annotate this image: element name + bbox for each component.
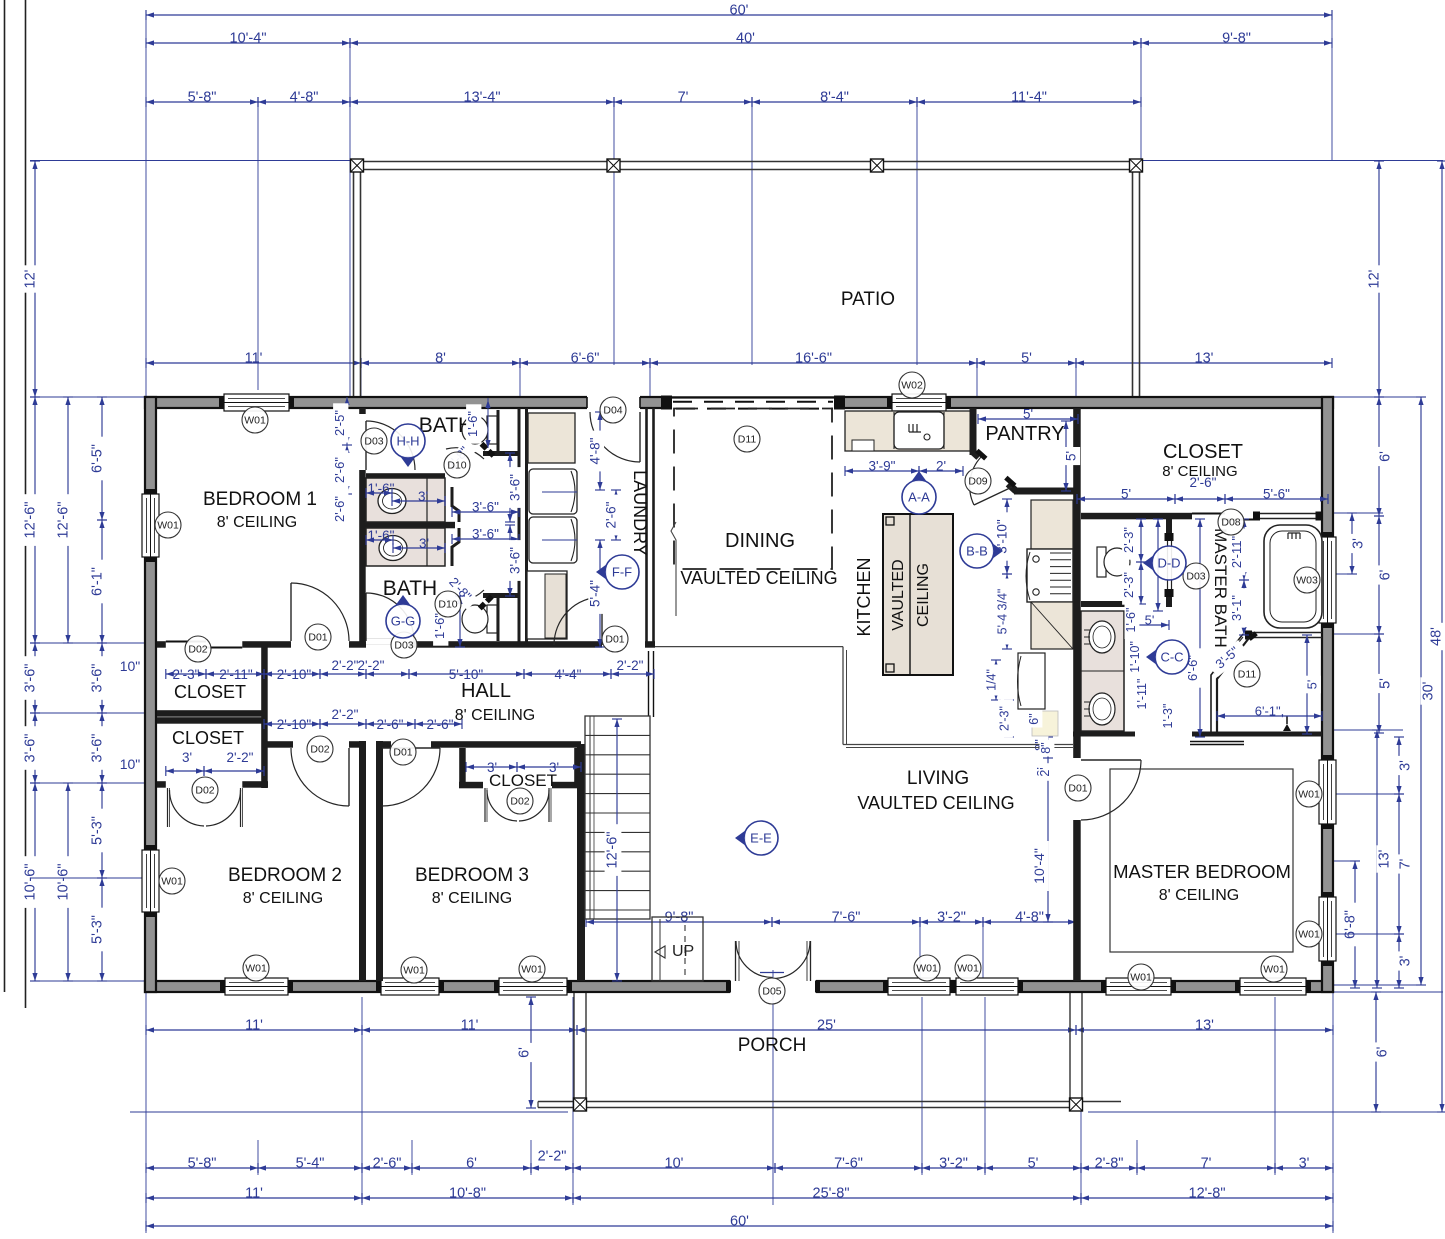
svg-text:5'-8": 5'-8" xyxy=(188,1156,217,1172)
svg-text:H-H: H-H xyxy=(396,434,419,449)
svg-text:4'-8": 4'-8" xyxy=(1015,910,1044,926)
svg-text:2'-10": 2'-10" xyxy=(277,717,312,732)
svg-text:VAULTED: VAULTED xyxy=(890,559,907,630)
svg-text:2': 2' xyxy=(1038,767,1052,776)
svg-text:7'-6": 7'-6" xyxy=(832,910,861,926)
svg-text:3': 3' xyxy=(1299,1156,1310,1172)
svg-text:CEILING: CEILING xyxy=(915,563,932,627)
svg-text:2'-3": 2'-3" xyxy=(998,706,1012,731)
svg-text:VAULTED CEILING: VAULTED CEILING xyxy=(680,568,837,588)
svg-text:D02: D02 xyxy=(310,744,329,756)
svg-text:2'-11": 2'-11" xyxy=(1229,536,1244,569)
svg-text:D05: D05 xyxy=(762,986,781,998)
svg-text:KITCHEN: KITCHEN xyxy=(854,557,874,636)
svg-text:2'-2": 2'-2" xyxy=(332,707,359,722)
svg-text:25': 25' xyxy=(817,1018,836,1034)
svg-text:10'-6": 10'-6" xyxy=(56,864,72,901)
svg-text:1/4": 1/4" xyxy=(985,669,999,691)
svg-text:11'-4": 11'-4" xyxy=(1011,90,1047,106)
svg-text:13': 13' xyxy=(1377,849,1393,868)
svg-text:12': 12' xyxy=(23,269,39,288)
svg-text:4'-8": 4'-8" xyxy=(290,90,319,106)
svg-text:5'-3": 5'-3" xyxy=(90,915,106,944)
svg-text:D03: D03 xyxy=(364,436,383,448)
svg-text:2'-6": 2'-6" xyxy=(604,501,619,528)
svg-text:G-G: G-G xyxy=(391,614,416,629)
svg-text:5'-4 3/4": 5'-4 3/4" xyxy=(996,589,1010,635)
svg-text:HALL: HALL xyxy=(461,680,511,702)
svg-text:UP: UP xyxy=(672,943,694,960)
svg-text:11': 11' xyxy=(245,351,263,367)
svg-text:3'-1": 3'-1" xyxy=(1229,595,1244,621)
svg-text:2'-2": 2'-2" xyxy=(332,658,359,673)
svg-text:D11: D11 xyxy=(1238,669,1257,681)
svg-text:5': 5' xyxy=(1064,451,1079,461)
svg-text:60': 60' xyxy=(730,3,749,19)
svg-text:3': 3' xyxy=(549,760,559,775)
svg-text:3': 3' xyxy=(487,760,497,775)
svg-text:2'-11": 2'-11" xyxy=(219,667,253,682)
svg-text:7': 7' xyxy=(678,90,689,106)
svg-text:5': 5' xyxy=(1023,407,1033,422)
svg-text:3'-6": 3'-6" xyxy=(508,547,523,574)
svg-text:PATIO: PATIO xyxy=(841,289,895,310)
svg-text:D04: D04 xyxy=(603,405,622,417)
svg-text:D01: D01 xyxy=(605,634,624,646)
svg-text:D02: D02 xyxy=(195,785,214,797)
svg-text:3': 3' xyxy=(418,489,428,504)
svg-text:3': 3' xyxy=(1351,538,1367,549)
svg-text:W01: W01 xyxy=(1298,789,1320,801)
svg-text:LAUNDRY: LAUNDRY xyxy=(630,470,650,556)
svg-text:13'-4": 13'-4" xyxy=(464,90,501,106)
svg-text:6': 6' xyxy=(1378,569,1394,580)
svg-text:3': 3' xyxy=(182,750,192,765)
svg-text:6': 6' xyxy=(1375,1046,1391,1057)
svg-text:2'-6": 2'-6" xyxy=(377,717,404,732)
svg-text:W01: W01 xyxy=(1130,972,1152,984)
svg-text:2'-2": 2'-2" xyxy=(358,658,385,673)
svg-text:5'-4": 5'-4" xyxy=(588,580,603,607)
svg-text:3': 3' xyxy=(1398,760,1414,771)
svg-text:D01: D01 xyxy=(1068,783,1087,795)
svg-text:1'-6": 1'-6" xyxy=(1124,608,1138,633)
svg-text:5': 5' xyxy=(1305,680,1320,690)
svg-text:D08: D08 xyxy=(1221,517,1240,529)
svg-text:6": 6" xyxy=(1027,713,1041,724)
svg-text:D01: D01 xyxy=(393,747,412,759)
svg-text:1'-10": 1'-10" xyxy=(1128,641,1142,673)
svg-text:W03: W03 xyxy=(1296,575,1318,587)
svg-text:1'-6": 1'-6" xyxy=(368,528,395,543)
svg-text:6'-6": 6'-6" xyxy=(571,351,600,367)
svg-text:PANTRY: PANTRY xyxy=(985,423,1064,445)
svg-text:60': 60' xyxy=(730,1214,749,1230)
svg-text:A-A: A-A xyxy=(908,490,930,505)
svg-text:6'-1": 6'-1" xyxy=(90,567,106,596)
svg-text:3'-9": 3'-9" xyxy=(869,459,896,474)
svg-text:12': 12' xyxy=(1367,269,1383,288)
svg-text:5'-3": 5'-3" xyxy=(90,816,106,845)
svg-text:10'-6": 10'-6" xyxy=(23,864,39,901)
svg-text:11': 11' xyxy=(245,1018,263,1034)
svg-text:8' CEILING: 8' CEILING xyxy=(455,707,535,724)
svg-text:10'-4": 10'-4" xyxy=(230,31,267,47)
svg-text:2'-2": 2'-2" xyxy=(227,750,254,765)
svg-text:48': 48' xyxy=(1429,627,1445,646)
svg-text:BEDROOM 3: BEDROOM 3 xyxy=(415,865,529,886)
svg-text:2'-5": 2'-5" xyxy=(332,410,347,436)
svg-text:5'-4": 5'-4" xyxy=(296,1156,325,1172)
svg-text:DINING: DINING xyxy=(725,530,795,552)
svg-text:10': 10' xyxy=(665,1156,684,1172)
svg-text:5': 5' xyxy=(1021,351,1032,367)
svg-text:CLOSET: CLOSET xyxy=(174,682,246,702)
svg-text:3'-2": 3'-2" xyxy=(939,1156,968,1172)
svg-text:6': 6' xyxy=(1378,451,1394,462)
svg-text:CLOSET: CLOSET xyxy=(489,771,557,790)
svg-text:W01: W01 xyxy=(916,963,938,975)
svg-text:4'-4": 4'-4" xyxy=(555,667,582,682)
svg-text:25'-8": 25'-8" xyxy=(813,1186,850,1202)
svg-text:D02: D02 xyxy=(188,644,207,656)
svg-text:D03: D03 xyxy=(1186,571,1205,583)
svg-text:10": 10" xyxy=(120,658,141,674)
svg-text:6'-8": 6'-8" xyxy=(1343,910,1359,939)
svg-text:D09: D09 xyxy=(968,476,987,488)
svg-text:D03: D03 xyxy=(394,640,413,652)
svg-text:7': 7' xyxy=(1398,858,1414,869)
svg-text:5': 5' xyxy=(1121,487,1131,502)
svg-text:3'-6": 3'-6" xyxy=(508,474,523,501)
svg-text:16'-6": 16'-6" xyxy=(795,351,832,367)
svg-text:1'-11": 1'-11" xyxy=(1135,679,1149,710)
svg-text:1'-3": 1'-3" xyxy=(1161,704,1175,729)
svg-text:6'-1",: 6'-1", xyxy=(1255,704,1285,719)
svg-text:2'-3": 2'-3" xyxy=(1121,572,1136,598)
svg-text:BEDROOM 2: BEDROOM 2 xyxy=(228,865,342,886)
svg-text:7'-6": 7'-6" xyxy=(834,1156,863,1172)
svg-text:3': 3' xyxy=(419,536,429,551)
svg-text:MASTER BEDROOM: MASTER BEDROOM xyxy=(1113,861,1291,882)
svg-text:3'-2": 3'-2" xyxy=(937,910,966,926)
svg-text:PORCH: PORCH xyxy=(738,1035,807,1056)
svg-text:W01: W01 xyxy=(403,965,425,977)
svg-text:C-C: C-C xyxy=(1160,650,1183,665)
svg-text:F-F: F-F xyxy=(612,565,632,580)
svg-text:13': 13' xyxy=(1195,1018,1214,1034)
svg-text:D01: D01 xyxy=(308,632,327,644)
svg-text:30': 30' xyxy=(1421,681,1437,700)
svg-text:W01: W01 xyxy=(1298,929,1320,941)
svg-text:2'-10": 2'-10" xyxy=(277,667,312,682)
svg-text:8': 8' xyxy=(435,351,446,367)
svg-text:2'-8": 2'-8" xyxy=(1095,1156,1124,1172)
svg-text:8' CEILING: 8' CEILING xyxy=(217,514,297,531)
svg-text:W01: W01 xyxy=(521,964,543,976)
svg-text:D-D: D-D xyxy=(1157,556,1180,571)
svg-text:3': 3' xyxy=(1398,955,1414,966)
svg-text:1'-6": 1'-6" xyxy=(465,411,480,437)
svg-text:CLOSET: CLOSET xyxy=(172,728,244,748)
svg-text:5': 5' xyxy=(1145,613,1155,628)
svg-text:12'-6": 12'-6" xyxy=(56,502,72,539)
svg-text:3'-6": 3'-6" xyxy=(23,734,39,763)
svg-text:D02: D02 xyxy=(510,796,529,808)
svg-text:W01: W01 xyxy=(1263,964,1285,976)
svg-text:5': 5' xyxy=(1378,678,1394,689)
svg-text:8' CEILING: 8' CEILING xyxy=(1159,887,1239,904)
svg-text:LIVING: LIVING xyxy=(907,768,969,789)
svg-text:9'-8": 9'-8" xyxy=(1222,31,1251,47)
svg-text:2'-2": 2'-2" xyxy=(617,658,644,673)
svg-text:8'-4": 8'-4" xyxy=(820,90,849,106)
svg-text:W01: W01 xyxy=(245,963,267,975)
svg-text:5'-8": 5'-8" xyxy=(188,90,217,106)
svg-text:W01: W01 xyxy=(957,963,979,975)
svg-text:B-B: B-B xyxy=(966,544,988,559)
svg-text:10": 10" xyxy=(120,756,141,772)
svg-text:BATH: BATH xyxy=(383,577,437,600)
svg-text:D10: D10 xyxy=(438,599,457,611)
svg-text:E-E: E-E xyxy=(750,831,772,846)
svg-text:13': 13' xyxy=(1195,351,1214,367)
svg-text:8": 8" xyxy=(1039,742,1053,753)
svg-text:2'-6": 2'-6" xyxy=(427,717,454,732)
svg-text:7': 7' xyxy=(1201,1156,1212,1172)
svg-text:12'-8": 12'-8" xyxy=(1189,1186,1226,1202)
svg-text:W02: W02 xyxy=(901,380,923,392)
svg-text:12'-6": 12'-6" xyxy=(23,502,39,539)
svg-text:12'-6": 12'-6" xyxy=(605,832,621,869)
svg-text:6'-5": 6'-5" xyxy=(90,444,106,473)
svg-text:2'-6": 2'-6" xyxy=(332,496,347,522)
svg-text:2'-6": 2'-6" xyxy=(373,1156,402,1172)
svg-text:VAULTED CEILING: VAULTED CEILING xyxy=(857,793,1014,813)
svg-text:2': 2' xyxy=(936,459,946,474)
svg-text:3'-6": 3'-6" xyxy=(23,664,39,693)
svg-text:2'-3": 2'-3" xyxy=(173,667,200,682)
svg-text:10'-4": 10'-4" xyxy=(1031,848,1047,884)
svg-text:2'-6": 2'-6" xyxy=(332,457,347,483)
svg-text:3'-6": 3'-6" xyxy=(90,734,106,763)
svg-text:11': 11' xyxy=(461,1018,479,1034)
svg-text:W01: W01 xyxy=(157,520,179,532)
svg-text:6': 6' xyxy=(517,1047,533,1058)
svg-text:8' CEILING: 8' CEILING xyxy=(432,890,512,907)
svg-text:6': 6' xyxy=(466,1156,477,1172)
svg-text:CLOSET: CLOSET xyxy=(1163,441,1243,463)
svg-text:5'-6": 5'-6" xyxy=(1263,487,1290,502)
svg-text:3'-6": 3'-6" xyxy=(90,664,106,693)
svg-text:1'-6": 1'-6" xyxy=(368,481,395,496)
svg-text:5'-10": 5'-10" xyxy=(449,667,484,682)
svg-text:2'-3": 2'-3" xyxy=(1121,527,1136,553)
svg-text:D10: D10 xyxy=(447,460,466,472)
svg-text:40': 40' xyxy=(736,31,755,47)
svg-text:10'-8": 10'-8" xyxy=(449,1186,486,1202)
svg-text:3'-6": 3'-6" xyxy=(472,527,499,542)
svg-text:BEDROOM 1: BEDROOM 1 xyxy=(203,489,317,510)
svg-text:MASTER BATH: MASTER BATH xyxy=(1211,528,1230,648)
svg-text:W01: W01 xyxy=(244,415,266,427)
svg-text:2'-2": 2'-2" xyxy=(538,1149,567,1165)
svg-text:8' CEILING: 8' CEILING xyxy=(243,890,323,907)
svg-text:11': 11' xyxy=(245,1186,263,1202)
svg-text:2'-6": 2'-6" xyxy=(1190,475,1217,490)
svg-text:3'-6": 3'-6" xyxy=(472,500,499,515)
svg-text:W01: W01 xyxy=(161,876,183,888)
svg-text:D11: D11 xyxy=(738,434,757,446)
svg-text:5': 5' xyxy=(1028,1156,1039,1172)
svg-text:4'-8": 4'-8" xyxy=(588,437,603,464)
